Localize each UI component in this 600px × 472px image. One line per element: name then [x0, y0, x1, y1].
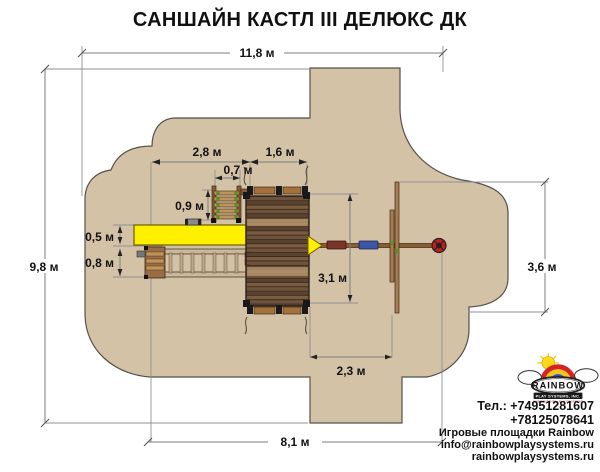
- tire-swing: [432, 239, 446, 253]
- rainbow-logo: RAINBOW PLAY SYSTEMS, INC. FINE RESIDENT…: [517, 350, 599, 404]
- slide-handle-cap: [185, 219, 188, 225]
- dim-right-height: 3,6 м: [528, 260, 557, 274]
- dim-deck-length: 3,1 м: [318, 271, 347, 285]
- slide-handle-cap: [198, 219, 201, 225]
- swing-seat-blue: [359, 241, 378, 249]
- dim-ramp-depth: 0,8 м: [85, 256, 114, 270]
- dim-slide-depth: 0,5 м: [85, 230, 114, 244]
- swing-frame-post: [395, 182, 399, 313]
- ramp-step: [137, 251, 145, 257]
- contact-phone-1: Тел.: +74951281607: [439, 399, 594, 413]
- dim-total-height: 9,8 м: [30, 260, 59, 274]
- dim-left-section: 2,8 м: [193, 145, 222, 159]
- deck-top-rail: [247, 186, 308, 195]
- contact-block: Тел.: +74951281607 +78125078641 Игровые …: [439, 399, 594, 463]
- dim-deck-width: 1,6 м: [266, 145, 295, 159]
- contact-website: rainbowplaysystems.ru: [439, 451, 594, 463]
- contact-company: Игровые площадки Rainbow: [439, 427, 594, 439]
- dim-climber-depth: 0,9 м: [175, 199, 204, 213]
- dim-total-width: 11,8 м: [240, 46, 275, 60]
- logo-subtitle-text: PLAY SYSTEMS, INC.: [536, 394, 581, 399]
- dim-bottom-width: 8,1 м: [281, 435, 310, 449]
- slide: [134, 225, 246, 245]
- contact-phone-2: +78125078641: [439, 413, 594, 427]
- contact-email: info@rainbowplaysystems.ru: [439, 439, 594, 451]
- swing-seat-red: [327, 241, 346, 249]
- dim-swing-span: 2,3 м: [337, 364, 366, 378]
- dim-climber-width: 0,7 м: [224, 163, 253, 177]
- swing-frame-post: [390, 210, 394, 282]
- logo-brand-text: RAINBOW: [532, 381, 584, 391]
